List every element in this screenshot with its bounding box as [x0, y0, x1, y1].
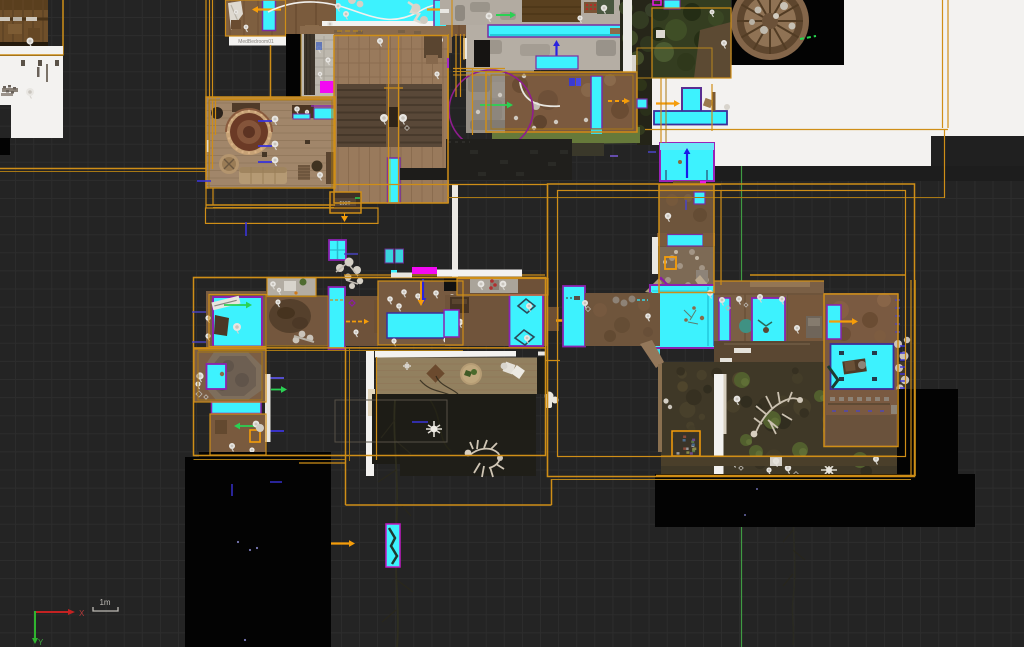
svg-text:X: X [79, 609, 85, 618]
svg-text:MedBedroom01: MedBedroom01 [238, 39, 274, 45]
svg-text:EXIT: EXIT [339, 201, 350, 207]
svg-text:1m: 1m [99, 598, 110, 607]
svg-text:Y: Y [38, 638, 44, 647]
